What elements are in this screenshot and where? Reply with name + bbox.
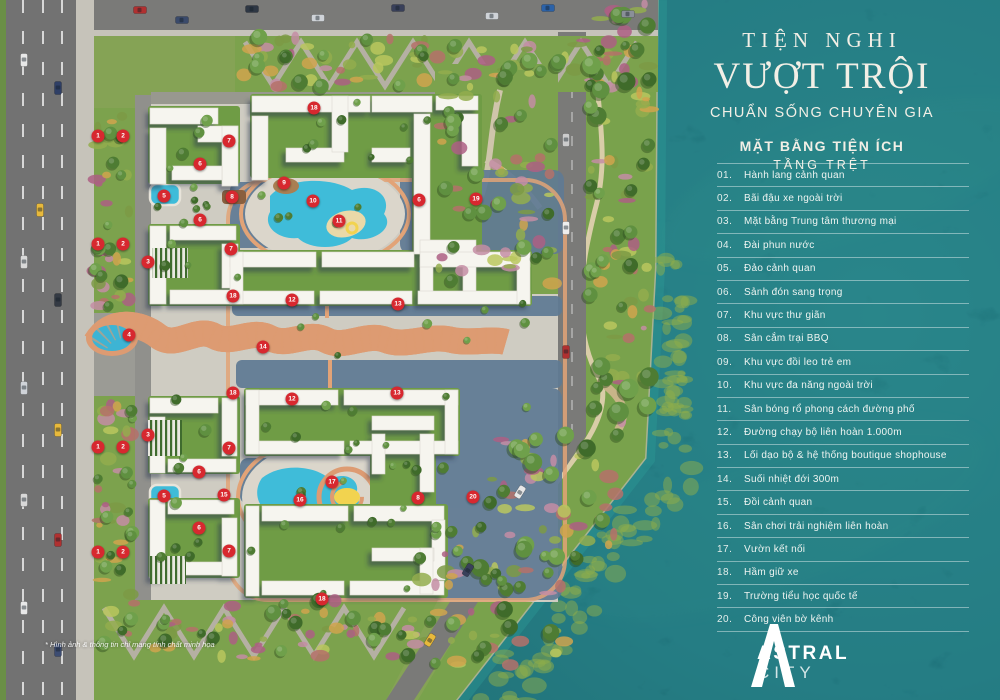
logo-suffix: CITY <box>757 664 849 681</box>
legend-item: 03.Mặt bằng Trung tâm thương mại <box>717 210 969 233</box>
legend-item-number: 05. <box>717 263 744 274</box>
legend-item: 12.Đường chạy bộ liên hoàn 1.000m <box>717 420 969 443</box>
legend-item-label: Hầm giữ xe <box>744 567 799 578</box>
map-marker-1: 1 <box>92 441 105 454</box>
legend-item-number: 17. <box>717 544 744 555</box>
map-marker-7: 7 <box>223 442 236 455</box>
legend-item: 09.Khu vực đồi leo trẻ em <box>717 350 969 373</box>
map-marker-9: 9 <box>278 177 291 190</box>
map-marker-6: 6 <box>194 158 207 171</box>
plan-subtitle: MẶT BẰNG TIỆN ÍCH <box>688 138 956 154</box>
map-marker-13: 13 <box>392 298 405 311</box>
headline-line3: CHUẨN SỐNG CHUYÊN GIA <box>688 105 956 121</box>
headline-line2: VƯỢT TRỘI <box>688 55 956 98</box>
legend-item: 06.Sảnh đón sang trọng <box>717 280 969 303</box>
legend-item-label: Suối nhiệt đới 300m <box>744 474 839 485</box>
legend-item: 02.Bãi đậu xe ngoài trời <box>717 186 969 209</box>
legend-item-label: Khu vực đa năng ngoài trời <box>744 380 873 391</box>
map-marker-8: 8 <box>412 492 425 505</box>
legend-item-label: Trường tiểu học quốc tế <box>744 591 858 602</box>
legend-item-number: 10. <box>717 380 744 391</box>
map-marker-11: 11 <box>333 215 346 228</box>
map-marker-6: 6 <box>194 214 207 227</box>
legend-item-label: Đồi cảnh quan <box>744 497 812 508</box>
legend-item-number: 06. <box>717 287 744 298</box>
map-marker-20: 20 <box>467 491 480 504</box>
legend-item: 15.Đồi cảnh quan <box>717 490 969 513</box>
map-marker-8: 8 <box>226 191 239 204</box>
map-marker-5: 5 <box>158 490 171 503</box>
legend-item-label: Sân chơi trải nghiệm liên hoàn <box>744 521 889 532</box>
map-marker-7: 7 <box>223 545 236 558</box>
legend-item: 19.Trường tiểu học quốc tế <box>717 584 969 607</box>
map-marker-15: 15 <box>218 489 231 502</box>
legend-item: 18.Hầm giữ xe <box>717 561 969 584</box>
map-marker-7: 7 <box>225 243 238 256</box>
legend-item: 05.Đảo cảnh quan <box>717 257 969 280</box>
map-marker-18: 18 <box>227 387 240 400</box>
legend-item: 10.Khu vực đa năng ngoài trời <box>717 374 969 397</box>
map-marker-2: 2 <box>117 546 130 559</box>
legend-item-number: 18. <box>717 567 744 578</box>
map-marker-12: 12 <box>286 393 299 406</box>
louver-roof <box>150 556 186 584</box>
legend-item-number: 01. <box>717 170 744 181</box>
legend-item-label: Vườn kết nối <box>744 544 805 555</box>
legend-item-number: 12. <box>717 427 744 438</box>
map-marker-1: 1 <box>92 130 105 143</box>
map-marker-19: 19 <box>470 193 483 206</box>
map-marker-18: 18 <box>316 593 329 606</box>
map-marker-2: 2 <box>117 130 130 143</box>
headline-line1: TIỆN NGHI <box>688 28 956 53</box>
map-marker-12: 12 <box>286 294 299 307</box>
map-marker-14: 14 <box>257 341 270 354</box>
legend-item-label: Hành lang cảnh quan <box>744 170 845 181</box>
legend-item: 14.Suối nhiệt đới 300m <box>717 467 969 490</box>
legend-item-label: Mặt bằng Trung tâm thương mại <box>744 216 897 227</box>
map-marker-3: 3 <box>142 429 155 442</box>
legend-item: 04.Đài phun nước <box>717 233 969 256</box>
legend-item-label: Khu vực đồi leo trẻ em <box>744 357 851 368</box>
map-marker-6: 6 <box>193 522 206 535</box>
map-marker-1: 1 <box>92 238 105 251</box>
legend-item-number: 02. <box>717 193 744 204</box>
amenity-legend: 01.Hành lang cảnh quan02.Bãi đậu xe ngoà… <box>717 163 969 632</box>
map-marker-18: 18 <box>227 290 240 303</box>
legend-item: 11.Sân bóng rổ phong cách đường phố <box>717 397 969 420</box>
legend-item-number: 07. <box>717 310 744 321</box>
map-marker-4: 4 <box>123 329 136 342</box>
legend-item-number: 08. <box>717 333 744 344</box>
legend-item-number: 03. <box>717 216 744 227</box>
legend-item: 01.Hành lang cảnh quan <box>717 163 969 186</box>
legend-item-number: 19. <box>717 591 744 602</box>
legend-item-label: Lối dạo bộ & hệ thống boutique shophouse <box>744 450 947 461</box>
map-marker-16: 16 <box>294 494 307 507</box>
legend-item-number: 14. <box>717 474 744 485</box>
legend-item-number: 11. <box>717 404 744 415</box>
masterplan-poster: 1212121233455666667777889101112121313141… <box>0 0 1000 700</box>
legend-item-label: Sân cắm trại BBQ <box>744 333 829 344</box>
legend-item: 13.Lối dạo bộ & hệ thống boutique shopho… <box>717 444 969 467</box>
legend-item-label: Sảnh đón sang trọng <box>744 287 843 298</box>
map-marker-3: 3 <box>142 256 155 269</box>
map-marker-18: 18 <box>308 102 321 115</box>
title-block: TIỆN NGHI VƯỢT TRỘI CHUẨN SỐNG CHUYÊN GI… <box>688 28 956 172</box>
legend-item-number: 15. <box>717 497 744 508</box>
map-marker-5: 5 <box>158 190 171 203</box>
left-road <box>0 0 94 700</box>
map-marker-6: 6 <box>193 466 206 479</box>
brand-logo: ASTRAL CITY <box>750 624 849 681</box>
legend-item-label: Đảo cảnh quan <box>744 263 816 274</box>
legend-item: 16.Sân chơi trải nghiệm liên hoàn <box>717 514 969 537</box>
map-marker-13: 13 <box>391 387 404 400</box>
disclaimer-note: * Hình ảnh & thông tin chỉ mang tính chấ… <box>45 640 215 649</box>
legend-item-number: 20. <box>717 614 744 625</box>
map-marker-2: 2 <box>117 441 130 454</box>
legend-item-label: Khu vực thư giãn <box>744 310 826 321</box>
map-marker-10: 10 <box>307 195 320 208</box>
legend-item-number: 04. <box>717 240 744 251</box>
legend-item: 17.Vườn kết nối <box>717 537 969 560</box>
legend-item: 07.Khu vực thư giãn <box>717 303 969 326</box>
legend-item-label: Đài phun nước <box>744 240 815 251</box>
legend-item-label: Bãi đậu xe ngoài trời <box>744 193 842 204</box>
legend-item-number: 13. <box>717 450 744 461</box>
legend-item: 08.Sân cắm trại BBQ <box>717 327 969 350</box>
map-marker-17: 17 <box>326 476 339 489</box>
legend-item-label: Sân bóng rổ phong cách đường phố <box>744 404 915 415</box>
legend-item-number: 09. <box>717 357 744 368</box>
map-marker-2: 2 <box>117 238 130 251</box>
map-marker-1: 1 <box>92 546 105 559</box>
legend-item-label: Đường chạy bộ liên hoàn 1.000m <box>744 427 902 438</box>
legend-item-number: 16. <box>717 521 744 532</box>
map-marker-7: 7 <box>223 135 236 148</box>
louver-roof <box>152 248 188 278</box>
map-marker-6: 6 <box>413 194 426 207</box>
